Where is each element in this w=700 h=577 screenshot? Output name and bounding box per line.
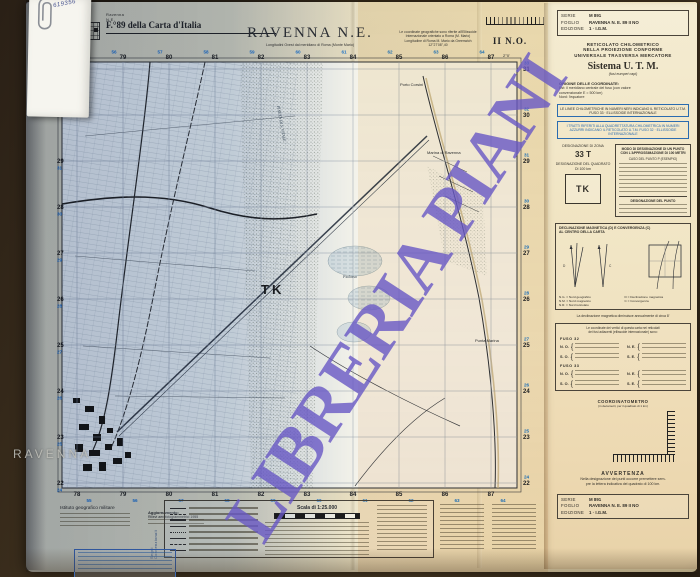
svg-text:84: 84 — [350, 55, 357, 61]
svg-text:32: 32 — [524, 107, 530, 112]
edizione-label: EDIZIONE — [561, 26, 589, 33]
corner-values — [642, 343, 686, 351]
sheet-bottom-shadow — [26, 548, 697, 572]
svg-text:64: 64 — [479, 50, 485, 55]
utm-panel: SERIEM 891 FOGLIORAVENNA N. E. 89 II NO … — [549, 10, 697, 519]
svg-text:30: 30 — [523, 113, 530, 119]
label-porto-corsini: Porto Corsini — [400, 82, 423, 87]
blue-grid-note: I tratti riferiti alla quadrettatura chi… — [557, 121, 689, 139]
edizione-value: 1 · I.G.M. — [589, 26, 685, 33]
note-card: 619356 — [27, 0, 91, 118]
point-designation-box: MODO DI DESIGNAZIONE DI UN PUNTO CON L'A… — [615, 144, 691, 217]
svg-text:79: 79 — [120, 55, 127, 61]
corner-coordinates-box: Le coordinate dei vertici di questa cart… — [555, 323, 691, 391]
corner-values — [575, 380, 619, 388]
svg-text:27: 27 — [523, 251, 530, 257]
corner-label: S. E. — [627, 382, 635, 386]
fuso-ovest-label: FUSO 32 — [560, 337, 686, 341]
svg-text:24: 24 — [523, 389, 530, 395]
coordinatometro: COORDINATOMETRO (in decametri, per il qu… — [549, 399, 697, 465]
svg-text:23: 23 — [57, 435, 64, 441]
designation-examples — [619, 204, 687, 214]
label-pialassa: Pialassa — [342, 274, 357, 279]
svg-text:27: 27 — [524, 337, 530, 342]
coordinatometro-horizontal-ruler — [613, 454, 675, 462]
corner-label: S. E. — [627, 355, 635, 359]
svg-text:22: 22 — [57, 481, 64, 487]
legend-column — [377, 505, 427, 553]
fuso-est-label: FUSO 33 — [560, 364, 686, 368]
svg-text:27: 27 — [57, 251, 64, 257]
svg-text:28: 28 — [57, 304, 63, 309]
declination-title: AL CENTRO DELLA CARTA — [559, 230, 687, 234]
geodetic-note: Le coordinate geografiche sono riferite … — [398, 30, 478, 48]
corner-label: S. O. — [560, 355, 569, 359]
corner-label: S. O. — [560, 382, 569, 386]
svg-text:29: 29 — [524, 245, 530, 250]
label-marina-di-ravenna: Marina di Ravenna — [427, 150, 461, 155]
svg-text:22: 22 — [523, 481, 530, 487]
credits-smallprint — [60, 513, 130, 527]
corner-coords-intro: dei fusi adiacenti (ellissoide internazi… — [560, 330, 686, 334]
avvertenza: AVVERTENZA Nella designazione dei punti … — [549, 471, 697, 486]
map-title: RAVENNA N.E. — [225, 25, 395, 42]
declination-legend: N.G. = Nord geografico N.M. = Nord magne… — [559, 295, 687, 307]
photo-frame: Ravenna N.E. F.°89 della Carta d'Italia … — [0, 0, 700, 577]
svg-text:25: 25 — [523, 343, 530, 349]
svg-text:86: 86 — [442, 55, 449, 61]
abbreviation-smallprint — [440, 504, 484, 552]
utm-square-label: TK — [261, 282, 284, 297]
legend-column — [170, 505, 258, 553]
svg-text:26: 26 — [57, 297, 64, 303]
corner-values — [642, 353, 686, 361]
declination-box: DECLINAZIONE MAGNETICA (D) E CONVERGENZA… — [555, 223, 691, 311]
ravenna-city-label: RAVENNA — [13, 447, 91, 461]
svg-text:24: 24 — [57, 488, 63, 493]
svg-text:82: 82 — [258, 55, 265, 61]
svg-text:24: 24 — [57, 389, 64, 395]
svg-text:25: 25 — [524, 429, 530, 434]
reticolato-line: UNIVERSALE TRASVERSA MERCATORE — [549, 53, 697, 59]
corner-values — [642, 370, 686, 378]
edizione-value: 1 · I.G.M. — [589, 510, 685, 517]
svg-text:33: 33 — [524, 61, 530, 66]
svg-text:58: 58 — [203, 50, 209, 55]
svg-text:26: 26 — [57, 396, 63, 401]
coordinatometro-vertical-ruler — [667, 411, 675, 455]
square-title: DESIGNAZIONE DEL QUADRATO DI 100 km — [555, 162, 611, 171]
sheet-info-box: SERIEM 891 FOGLIORAVENNA N. E. 89 II NO … — [557, 10, 689, 36]
declination-note: La declinazione magnetica diminuisce ann… — [555, 314, 691, 318]
svg-text:57: 57 — [157, 50, 163, 55]
edizione-label: EDIZIONE — [561, 510, 589, 517]
corner-values — [642, 380, 686, 388]
point-designation-label: DESIGNAZIONE DEL PUNTO — [619, 196, 687, 203]
svg-text:23: 23 — [523, 435, 530, 441]
svg-text:24: 24 — [524, 475, 530, 480]
svg-text:29: 29 — [523, 159, 530, 165]
coordinatometro-subtitle: (in decametri, per il quadrato di 1 km) — [549, 404, 697, 408]
sheet-info-box-bottom: SERIEM 891 FOGLIORAVENNA N. E. 89 II NO … — [557, 494, 689, 520]
zone-designation: DESIGNAZIONE DI ZONA 33 T DESIGNAZIONE D… — [555, 144, 691, 217]
zone-title: DESIGNAZIONE DI ZONA — [555, 144, 611, 148]
corner-longitude: 2°0' — [503, 53, 510, 58]
credits: Istituto geografico militare — [60, 506, 152, 527]
modo-subtitle: CASO DEL PUNTO P (ESEMPIO) — [619, 157, 687, 161]
svg-text:85: 85 — [396, 55, 403, 61]
quadrant-label: II N.O. — [478, 36, 542, 46]
svg-text:29: 29 — [57, 159, 64, 165]
svg-text:83: 83 — [304, 55, 311, 61]
svg-text:27: 27 — [57, 350, 63, 355]
svg-text:28: 28 — [57, 205, 64, 211]
svg-text:29: 29 — [57, 258, 63, 263]
corner-label: N. E. — [627, 372, 635, 376]
label-punta-marina: Punta Marina — [475, 338, 500, 343]
svg-text:30: 30 — [524, 199, 530, 204]
grid-convergence-diagram — [643, 237, 687, 293]
avvertenza-line: pre la lettera indicativa del quadrato d… — [549, 482, 697, 487]
svg-text:30: 30 — [57, 212, 63, 217]
black-grid-note: Le linee chilometriche in numeri neri in… — [557, 104, 689, 117]
svg-text:56: 56 — [111, 50, 117, 55]
utm-system-title: Sistema U. T. M. — [549, 61, 697, 72]
north-arrows-diagram: D C — [559, 237, 621, 293]
declination-legend-item: C = Convergenza — [625, 299, 688, 303]
abbreviation-smallprint — [492, 504, 536, 552]
svg-text:31: 31 — [523, 67, 530, 73]
modo-smallprint — [619, 163, 687, 193]
modo-title: MODO DI DESIGNAZIONE DI UN PUNTO CON L'A… — [619, 147, 687, 155]
svg-text:31: 31 — [524, 153, 530, 158]
margin-scale-ruler — [486, 17, 544, 25]
corner-values — [575, 343, 619, 351]
svg-text:62: 62 — [387, 50, 393, 55]
svg-text:26: 26 — [523, 297, 530, 303]
corner-values — [575, 370, 619, 378]
svg-text:59: 59 — [249, 50, 255, 55]
scale-label: Scala di 1:25.000 — [265, 505, 369, 511]
svg-text:31: 31 — [57, 166, 63, 171]
corner-label: N. O. — [560, 372, 569, 376]
svg-text:81: 81 — [212, 55, 219, 61]
svg-text:D: D — [563, 264, 566, 268]
coordinate-origin: ORIGINE DELLE COORDINATE: Est: il meridi… — [559, 81, 687, 100]
svg-text:28: 28 — [524, 291, 530, 296]
scale-bar — [274, 513, 360, 519]
svg-text:25: 25 — [57, 343, 64, 349]
svg-text:25: 25 — [57, 442, 63, 447]
svg-text:87: 87 — [488, 55, 495, 61]
utm-system-subtitle: (fusi europei capi) — [549, 72, 697, 76]
svg-text:60: 60 — [295, 50, 301, 55]
abbreviations-list — [440, 504, 536, 554]
legend-column-scale: Scala di 1:25.000 — [265, 505, 369, 553]
corner-label: N. E. — [627, 345, 635, 349]
svg-text:61: 61 — [341, 50, 347, 55]
corner-label: N. O. — [560, 345, 569, 349]
svg-text:C: C — [609, 264, 612, 268]
svg-text:28: 28 — [523, 205, 530, 211]
origin-line: Nord: l'equatore — [559, 95, 687, 100]
zone-value: 33 T — [555, 150, 611, 159]
svg-text:63: 63 — [433, 50, 439, 55]
declination-legend-item: N.R. = Nord reticolato — [559, 303, 622, 307]
legend-smallprint — [377, 505, 427, 553]
credits-line: Istituto geografico militare — [60, 506, 152, 511]
svg-text:80: 80 — [166, 55, 173, 61]
corner-values — [575, 353, 619, 361]
topographic-map: 7878797980808181828283838484858586868787… — [55, 46, 533, 506]
square-value: TK — [565, 174, 601, 204]
svg-text:26: 26 — [524, 383, 530, 388]
